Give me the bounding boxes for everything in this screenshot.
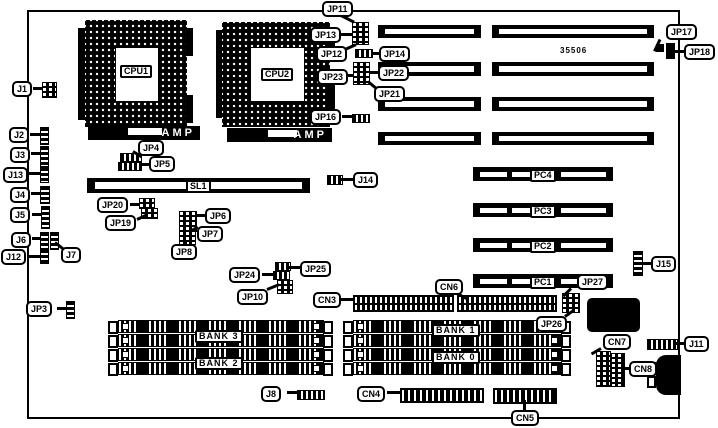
callout-jp11: JP11 [322,1,353,17]
isa-slot-4-left [378,132,481,145]
j2-pins [40,127,49,145]
simm-tab [343,321,353,334]
isa-slot-2-right [492,62,654,76]
simm-tab [561,349,571,362]
jp6-pins [179,211,197,221]
callout-cn3: CN3 [313,292,341,308]
cpu1-amp-text: AMP [162,127,195,139]
leader-line [30,133,40,136]
callout-j14: J14 [353,172,378,188]
callout-j5: J5 [10,207,30,223]
board-number: 35506 [560,46,587,55]
jp11-jp12-jp13-pin-block [352,22,369,45]
callout-j2: J2 [9,127,29,143]
callout-jp6: JP6 [205,208,231,224]
leader-line [387,391,400,394]
callout-jp22: JP22 [378,65,409,81]
cpu1-tab-bottom [186,95,193,123]
leader-line [641,262,651,265]
callout-jp14: JP14 [379,46,410,62]
callout-j1: J1 [12,81,32,97]
j11-pins [647,339,678,350]
pc1-label: PC1 [530,276,556,289]
callout-jp10: JP10 [237,289,268,305]
callout-jp26: JP26 [536,316,567,332]
cpu1-amp-connector: AMP [88,126,200,140]
cpu1-label: CPU1 [120,65,152,78]
callout-jp21: JP21 [374,86,405,102]
controller-chip [587,298,640,332]
leader-line [130,203,139,206]
pc3-label: PC3 [530,205,556,218]
callout-j11: J11 [684,336,709,352]
leader-line [27,255,40,258]
simm-tab [108,363,118,376]
leader-line [32,213,41,216]
keyboard-tab [647,376,656,388]
leader-line [287,391,297,394]
pc2-label: PC2 [530,240,556,253]
leader-line [342,115,352,118]
leader-line [196,214,205,217]
callout-jp25: JP25 [300,261,331,277]
simm-tab [343,349,353,362]
callout-jp27: JP27 [577,274,608,290]
simm-tab [343,363,353,376]
isa-slot-3-right [492,97,654,111]
callout-cn4: CN4 [357,386,385,402]
callout-j6: J6 [11,232,31,248]
cn6-connector [457,295,557,312]
simm-tab [108,321,118,334]
simm-tab [108,335,118,348]
bank3-label: BANK 3 [195,330,243,343]
callout-jp8: JP8 [171,244,197,260]
leader-line [371,52,379,55]
cpu2-amp-connector: AMP [227,128,332,142]
j8-pins [297,390,325,400]
callout-j7: J7 [61,247,81,263]
callout-j4: J4 [10,187,30,203]
callout-j8: J8 [261,386,281,402]
leader-line [57,307,66,310]
jp3-pins [66,301,75,319]
j3-pins [40,146,49,167]
callout-j3: J3 [10,147,30,163]
j13-pins [40,167,49,183]
callout-jp5: JP5 [149,156,175,172]
leader-line [262,273,273,276]
leader-line [289,266,300,269]
j4-pins [40,186,50,204]
callout-jp12: JP12 [316,46,347,62]
leader-line [675,50,684,53]
isa-slot-4-right [492,132,654,145]
cpu2-label: CPU2 [261,68,293,81]
cpu1-amp-keying [128,128,162,135]
simm-tab [323,363,333,376]
jp18-pin [666,43,675,59]
callout-jp18: JP18 [684,44,715,60]
simm-tab [561,363,571,376]
callout-jp16: JP16 [310,109,341,125]
jp16-pins [352,114,370,123]
leader-line [29,172,40,175]
j6-pins [40,232,49,250]
cn7-header [596,351,611,387]
leader-line [31,192,40,195]
sl1-label: SL1 [186,180,211,193]
simm-tab [323,321,333,334]
pc4-label: PC4 [530,169,556,182]
callout-jp23: JP23 [317,69,348,85]
simm-tab [323,335,333,348]
leader-line [33,87,42,90]
simm-tab [323,349,333,362]
cpu2-amp-text: AMP [294,129,327,141]
jp8-pins [179,231,196,245]
bank0-label: BANK 0 [432,351,480,364]
cpu1-tab-top [186,28,193,56]
callout-cn7: CN7 [603,334,631,350]
cn8-header [611,353,625,387]
cn3-connector [353,295,454,312]
leader-line [141,163,149,166]
isa-slot-1-right [492,25,654,38]
cn4-connector [400,388,484,403]
j12-pins [40,249,49,264]
keyboard-din-connector [656,355,681,395]
bank2-label: BANK 2 [195,357,243,370]
simm-tab [561,335,571,348]
j5-pins [41,206,50,229]
motherboard-diagram: CPU1 AMP CPU2 AMP SL1 35506 PC4 PC3 PC2 … [0,0,718,428]
jp10-pins [277,280,293,294]
isa-slot-1-left [378,25,481,38]
j1-pins [42,82,57,98]
callout-j15: J15 [651,256,676,272]
leader-line [32,237,40,240]
callout-jp19: JP19 [105,215,136,231]
callout-jp3: JP3 [26,301,52,317]
leader-line [340,298,353,301]
cpu2-amp-keying [268,130,297,137]
callout-j13: J13 [3,167,28,183]
simm-tab [108,349,118,362]
jp24-pins [273,271,290,280]
callout-jp20: JP20 [97,197,128,213]
callout-j12: J12 [1,249,26,265]
bank1-label: BANK 1 [432,324,480,337]
leader-line [31,152,40,155]
cpu1-lever-bar [78,28,85,120]
simm-tab [343,335,353,348]
callout-jp24: JP24 [229,267,260,283]
callout-cn8: CN8 [629,361,657,377]
jp5-pins [118,162,142,171]
callout-jp4: JP4 [138,140,164,156]
callout-cn6: CN6 [435,279,463,295]
leader-line [369,71,378,74]
callout-jp7: JP7 [197,226,223,242]
callout-jp13: JP13 [310,27,341,43]
callout-jp17: JP17 [666,24,697,40]
callout-cn5: CN5 [511,410,539,426]
leader-line [341,178,353,181]
